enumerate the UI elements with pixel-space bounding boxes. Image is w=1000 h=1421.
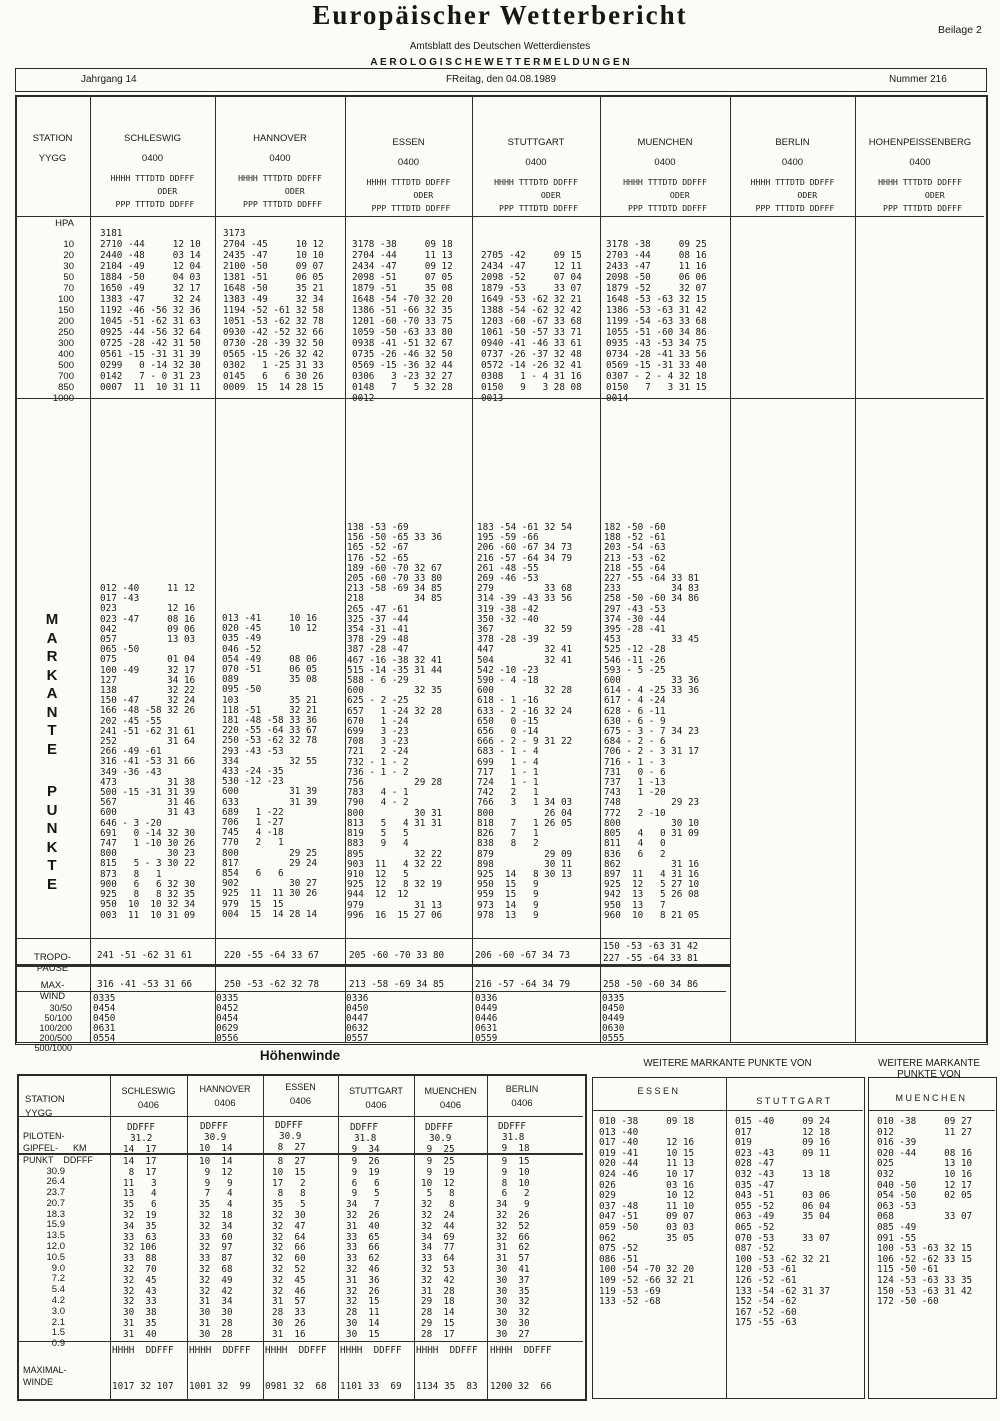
gipfel-value: 30.9 <box>429 1133 451 1144</box>
table-line <box>17 1153 583 1155</box>
station-time: 0400 <box>855 157 985 168</box>
station-name-berlin: BERLIN <box>730 137 855 148</box>
station-name-essen: ESSEN <box>345 137 472 148</box>
gipfel-value: 30.9 <box>279 1131 301 1142</box>
weather-bulletin-page: Europäischer Wetterbericht Beilage 2 Amt… <box>0 0 1000 1421</box>
table-line <box>110 1074 111 1399</box>
station-name-hohenpeissenberg: HOHENPEISSENBERG <box>855 137 985 148</box>
weitere-essen-label: ESSEN <box>592 1086 726 1096</box>
hw-station-muenchen: MUENCHEN <box>414 1086 487 1096</box>
maxwind-essen: 213 -58 -69 34 85 <box>349 979 444 990</box>
layer-labels: 30/50 50/100 100/200 200/500 500/1000 <box>17 1003 72 1053</box>
table-line <box>338 1074 339 1399</box>
markante-data-muenchen: 182 -50 -60 188 -52 -61 203 -54 -63 213 … <box>604 523 699 921</box>
hw-time: 0406 <box>187 1098 263 1109</box>
max-value-stuttgart: 1101 33 69 <box>340 1381 402 1392</box>
max-header: HHHH DDFFF <box>265 1345 327 1356</box>
ddfff-header: DDFFF <box>425 1122 453 1133</box>
table-line <box>868 1110 995 1111</box>
date-band: Jahrgang 14 FReitag, den 04.08.1989 Numm… <box>15 68 987 92</box>
layers-essen: 0336 0450 0447 0632 0557 <box>346 994 368 1044</box>
gipfel-value: 31.2 <box>130 1133 152 1144</box>
tropo-schleswig: 241 -51 -62 31 61 <box>97 950 192 961</box>
max-header: HHHH DDFFF <box>340 1345 402 1356</box>
table-line <box>90 95 91 1042</box>
obs-code-header: HHHH TTTDTD DDFFF ODER PPP TTTDTD DDFFF <box>345 176 472 215</box>
yygg-label: YYGG <box>16 153 89 164</box>
layers-stuttgart: 0336 0449 0446 0631 0559 <box>475 994 497 1044</box>
station-time: 0400 <box>730 157 855 168</box>
hw-station-berlin: BERLIN <box>487 1084 557 1094</box>
km-winds-muenchen: 9 25 9 19 10 12 5 8 32 8 32 24 32 44 34 … <box>421 1157 455 1341</box>
hpa-data-muenchen: 3178 -38 09 25 2703 -44 08 16 2433 -47 1… <box>606 239 707 404</box>
hpa-unit-label: HPA <box>14 218 74 229</box>
ddfff-header: DDFFF <box>200 1121 228 1132</box>
obs-code-header: HHHH TTTDTD DDFFF ODER PPP TTTDTD DDFFF <box>600 176 730 215</box>
tropo-hannover: 220 -55 -64 33 67 <box>224 950 319 961</box>
ddfff-header: DDFFF <box>498 1121 526 1132</box>
max-header: HHHH DDFFF <box>189 1345 251 1356</box>
ddfff-header: DDFFF <box>127 1122 155 1133</box>
station-time: 0400 <box>90 153 215 164</box>
station-time: 0400 <box>345 157 472 168</box>
layers-muenchen: 0335 0450 0449 0630 0555 <box>602 994 624 1044</box>
table-line <box>592 1110 863 1111</box>
station-time: 0400 <box>215 153 345 164</box>
obs-code-header: HHHH TTTDTD DDFFF ODER PPP TTTDTD DDFFF <box>472 176 600 215</box>
gipfel-value: 31.8 <box>502 1132 524 1143</box>
max-value-essen: 0981 32 68 <box>265 1381 327 1392</box>
gipfel-value: 30.9 <box>204 1132 226 1143</box>
max-header: HHHH DDFFF <box>112 1345 174 1356</box>
table-line <box>15 964 730 967</box>
maxwind-stuttgart: 216 -57 -64 34 79 <box>475 979 570 990</box>
markante-data-schleswig: 012 -40 11 12 017 -43 023 12 16 023 -47 … <box>100 584 195 921</box>
weitere-muenchen-label: MUENCHEN <box>868 1093 995 1103</box>
tropo-muenchen: 150 -53 -63 31 42 227 -55 -64 33 81 <box>603 941 698 964</box>
station-name-stuttgart: STUTTGART <box>472 137 600 148</box>
hw-time: 0406 <box>110 1100 187 1111</box>
km-labels: 30.9 26.4 23.7 20.7 18.3 15.9 13.5 12.0 … <box>17 1167 65 1351</box>
hpa-data-stuttgart: 2705 -42 09 15 2434 -47 12 11 2098 -52 0… <box>481 250 582 404</box>
table-line <box>855 95 856 1042</box>
table-line <box>17 1116 583 1117</box>
table-line <box>15 398 984 399</box>
max-value-schleswig: 1017 32 107 <box>112 1381 174 1392</box>
station-time: 0400 <box>472 157 600 168</box>
km-winds-schleswig: 14 17 8 17 11 3 13 4 35 6 32 19 34 35 33… <box>123 1157 157 1341</box>
ddfff-header: DDFFF <box>350 1122 378 1133</box>
table-line <box>730 95 731 1042</box>
table-line <box>472 95 473 1042</box>
gipfel-value: 31.8 <box>354 1133 376 1144</box>
hpa-data-hannover: 3173 2704 -45 10 12 2435 -47 10 10 2100 … <box>223 228 324 393</box>
beilage-note: Beilage 2 <box>938 24 982 36</box>
km-winds-essen: 8 27 10 15 17 2 8 8 35 5 32 30 32 47 32 … <box>272 1157 306 1341</box>
max-value-muenchen: 1134 35 83 <box>416 1381 478 1392</box>
station-name-schleswig: SCHLESWIG <box>90 133 215 144</box>
weitere-stuttgart-label: STUTTGART <box>726 1096 863 1106</box>
hw-time: 0406 <box>338 1100 414 1111</box>
maxwind-hannover: 250 -53 -62 32 78 <box>224 979 319 990</box>
table-line <box>187 1074 188 1399</box>
page-title: Europäischer Wetterbericht <box>0 0 1000 31</box>
hw-time: 0406 <box>414 1100 487 1111</box>
table-line <box>600 95 601 1042</box>
nummer-label: Nummer 216 <box>889 74 947 85</box>
table-line <box>15 216 984 217</box>
date-label: FReitag, den 04.08.1989 <box>16 74 986 85</box>
table-line <box>15 938 730 939</box>
layers-schleswig: 0335 0454 0450 0631 0554 <box>93 994 115 1044</box>
km-winds-berlin: 9 15 9 10 8 10 6 2 34 9 32 26 32 52 32 6… <box>496 1157 530 1341</box>
km-winds-hannover: 10 14 9 12 9 9 7 4 35 4 32 18 32 34 33 6… <box>199 1157 233 1341</box>
piloten-gipfel-label: PILOTEN- GIPFEL- KM PUNKT DDFFF <box>23 1130 93 1166</box>
section-title: A E R O L O G I S C H E W E T T E R M E … <box>0 57 1000 68</box>
weitere-header-left: WEITERE MARKANTE PUNKTE VON <box>592 1058 863 1069</box>
station-label: STATION <box>16 133 89 144</box>
hw-time: 0406 <box>487 1098 557 1109</box>
table-line <box>726 1077 727 1399</box>
hw-time: 0406 <box>263 1096 338 1107</box>
obs-code-header: HHHH TTTDTD DDFFF ODER PPP TTTDTD DDFFF <box>855 176 985 215</box>
page-subtitle: Amtsblatt des Deutschen Wetterdienstes <box>0 41 1000 52</box>
km-winds-stuttgart: 9 26 9 19 6 6 9 5 34 7 32 26 31 40 33 65… <box>346 1157 380 1341</box>
ddfff-header: DDFFF <box>275 1120 303 1131</box>
weitere-essen-data: 010 -38 09 18 013 -40 017 -40 12 16 019 … <box>599 1117 694 1308</box>
hw-station-schleswig: SCHLESWIG <box>110 1086 187 1096</box>
obs-code-header: HHHH TTTDTD DDFFF ODER PPP TTTDTD DDFFF <box>730 176 855 215</box>
table-line <box>15 991 726 992</box>
hoehenwinde-title: Höhenwinde <box>150 1048 450 1063</box>
station-name-muenchen: MUENCHEN <box>600 137 730 148</box>
table-line <box>414 1074 415 1399</box>
station-time: 0400 <box>600 157 730 168</box>
weitere-stuttgart-data: 015 -40 09 24 017 12 18 019 09 16 023 -4… <box>735 1117 830 1329</box>
max-value-berlin: 1200 32 66 <box>490 1381 552 1392</box>
maximal-winde-label: MAXIMAL- WINDE <box>23 1364 67 1388</box>
markante-data-stuttgart: 183 -54 -61 32 54 195 -59 -66 206 -60 -6… <box>477 523 572 921</box>
punkte-label: P U N K T E <box>15 783 89 894</box>
obs-code-header: HHHH TTTDTD DDFFF ODER PPP TTTDTD DDFFF <box>215 172 345 211</box>
hpa-data-essen: 3178 -38 09 18 2704 -44 11 13 2434 -47 0… <box>352 239 453 404</box>
table-line <box>215 95 216 1042</box>
tropo-essen: 205 -60 -70 33 80 <box>349 950 444 961</box>
weitere-muenchen-data: 010 -38 09 27 012 11 27 016 -39 020 -44 … <box>877 1117 972 1308</box>
gipfel-wind: 8 27 <box>272 1142 306 1153</box>
table-line <box>345 95 346 1042</box>
markante-data-essen: 138 -53 -69 156 -50 -65 33 36 165 -52 -6… <box>347 523 442 921</box>
layers-hannover: 0335 0452 0454 0629 0556 <box>216 994 238 1044</box>
max-header: HHHH DDFFF <box>490 1345 552 1356</box>
table-line <box>487 1074 488 1399</box>
maxwind-muenchen: 258 -50 -60 34 86 <box>603 979 698 990</box>
markante-data-hannover: 013 -41 10 16 020 -45 10 12 035 -49 046 … <box>222 614 317 920</box>
markante-label: M A R K A N T E <box>15 611 89 759</box>
maxwind-schleswig: 316 -41 -53 31 66 <box>97 979 192 990</box>
table-line <box>17 1341 583 1342</box>
hw-station-stuttgart: STUTTGART <box>338 1086 414 1096</box>
tropo-stuttgart: 206 -60 -67 34 73 <box>475 950 570 961</box>
max-header: HHHH DDFFF <box>416 1345 478 1356</box>
table-line <box>263 1074 264 1399</box>
hpa-data-schleswig: 3181 2710 -44 12 10 2440 -48 03 14 2104 … <box>100 228 201 393</box>
max-value-hannover: 1001 32 99 <box>189 1381 251 1392</box>
hpa-level-labels: 10 20 30 50 70 100 150 200 250 300 400 5… <box>14 239 74 404</box>
station-name-hannover: HANNOVER <box>215 133 345 144</box>
tropopause-label: TROPO- PAUSE <box>16 952 89 974</box>
hw-station-hannover: HANNOVER <box>187 1084 263 1094</box>
obs-code-header: HHHH TTTDTD DDFFF ODER PPP TTTDTD DDFFF <box>90 172 215 211</box>
hw-station-essen: ESSEN <box>263 1082 338 1092</box>
